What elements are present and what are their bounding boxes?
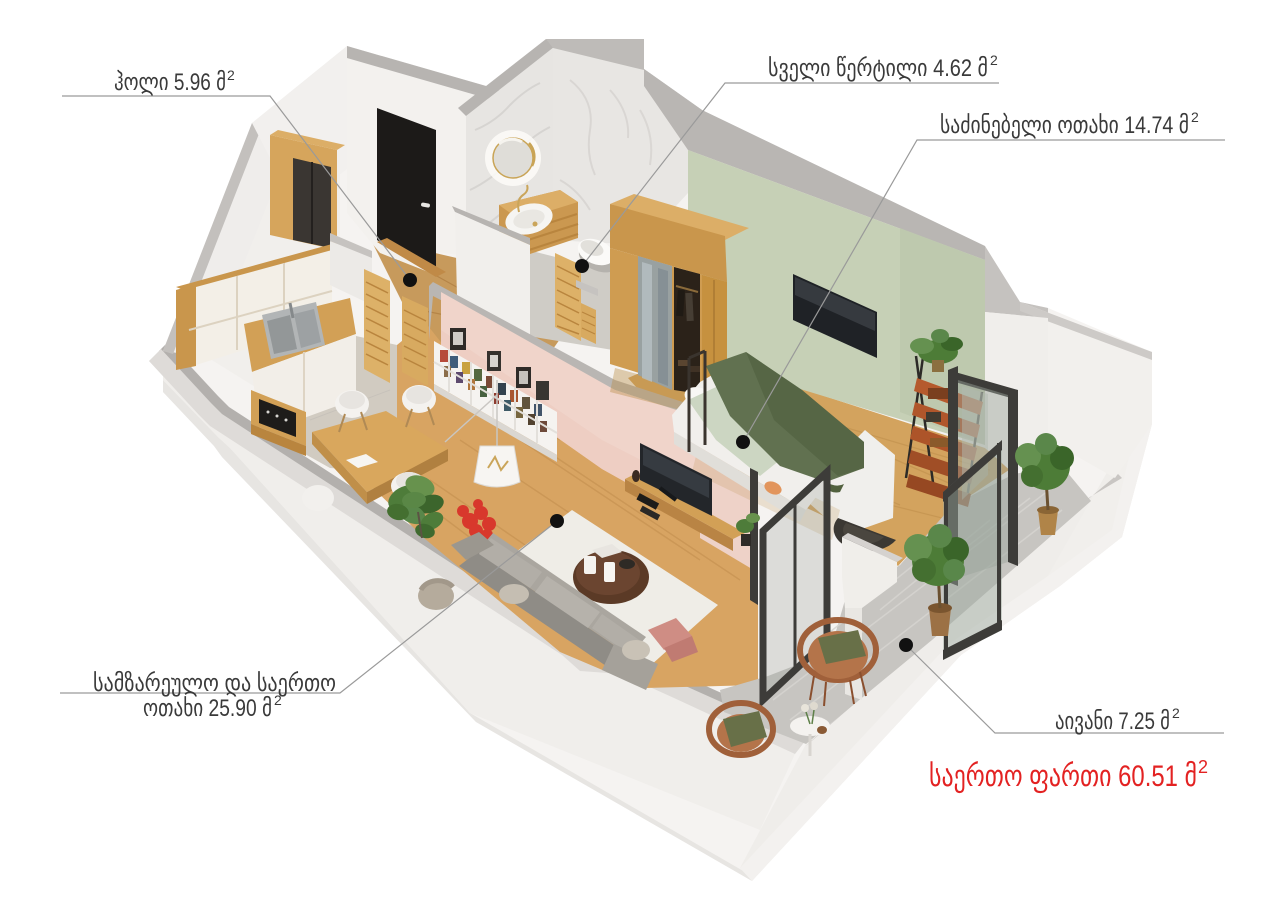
svg-text:2: 2 [227, 67, 235, 83]
svg-text:საძინებელი ოთახი 14.74 მ: საძინებელი ოთახი 14.74 მ [940, 112, 1189, 139]
svg-text:2: 2 [274, 692, 282, 708]
svg-text:2: 2 [1172, 705, 1180, 721]
svg-text:2: 2 [1191, 109, 1199, 125]
svg-text:სველი წერტილი 4.62 მ: სველი წერტილი 4.62 მ [768, 55, 988, 82]
svg-text:2: 2 [990, 52, 998, 68]
svg-text:საერთო ფართი 60.51 მ: საერთო ფართი 60.51 მ [929, 760, 1197, 794]
svg-text:ოთახი 25.90 მ: ოთახი 25.90 მ [143, 695, 272, 722]
svg-text:ჰოლი 5.96 მ: ჰოლი 5.96 მ [114, 69, 226, 96]
svg-text:2: 2 [1198, 757, 1208, 777]
svg-text:აივანი 7.25 მ: აივანი 7.25 მ [1055, 708, 1170, 735]
svg-text:სამზარეულო და საერთო: სამზარეულო და საერთო [93, 670, 336, 697]
